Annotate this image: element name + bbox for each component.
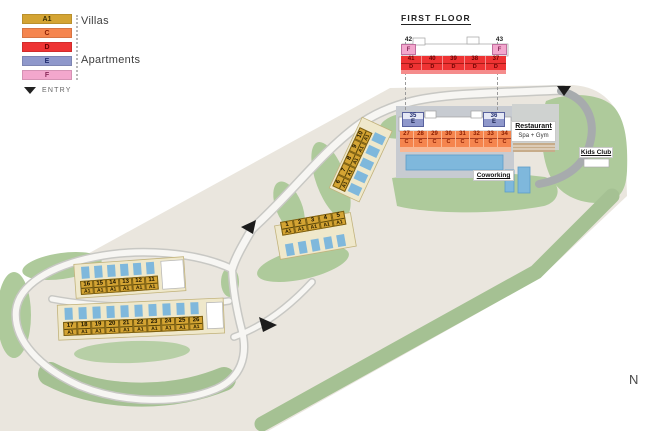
legend-swatch: D: [22, 42, 72, 52]
unit-type-badge: E: [484, 119, 504, 126]
unit-type: A1: [64, 329, 76, 336]
kids-club-label: Kids Club: [579, 147, 613, 158]
unit-number: 32: [470, 131, 483, 139]
legend-swatch: F: [22, 70, 72, 80]
unit-type-badge: F: [401, 44, 416, 55]
unit-type: A1: [78, 329, 90, 336]
unit-number: 34: [498, 131, 511, 139]
legend-swatch-column: A1 C D E F: [22, 14, 72, 80]
unit-43[interactable]: 43 F: [492, 36, 507, 55]
villa-unit[interactable]: 16 A1: [80, 280, 94, 295]
unit-number: 30: [442, 131, 455, 139]
unit-number: 28: [414, 131, 427, 139]
unit-type: A1: [162, 325, 174, 332]
villa-unit[interactable]: 23 A1: [147, 318, 162, 333]
apartment-unit[interactable]: 32 C: [470, 131, 483, 147]
unit-type: D: [465, 64, 485, 71]
unit-type: C: [414, 139, 427, 146]
unit-type: A1: [133, 285, 144, 292]
villa-unit[interactable]: 17 A1: [63, 321, 78, 336]
legend-item: C: [22, 28, 72, 38]
unit-number: 33: [484, 131, 497, 139]
unit-number: 42: [401, 36, 416, 44]
first-floor-title: FIRST FLOOR: [401, 13, 471, 25]
unit-type: A1: [95, 287, 106, 294]
legend-item: F: [22, 70, 72, 80]
unit-number: 39: [443, 56, 463, 64]
unit-type: A1: [176, 325, 188, 332]
unit-type: A1: [134, 326, 146, 333]
unit-type-badge: F: [492, 44, 507, 55]
entry-label: ENTRY: [42, 87, 72, 94]
unit-type: D: [486, 64, 506, 71]
villa-unit[interactable]: 12 A1: [132, 276, 146, 291]
villa-unit[interactable]: 19 A1: [91, 320, 106, 335]
villa-unit[interactable]: 24 A1: [161, 317, 176, 332]
legend-item: D: [22, 42, 72, 52]
unit-type: C: [456, 139, 469, 146]
unit-42[interactable]: 42 F: [401, 36, 416, 55]
apartment-unit[interactable]: 39 D: [443, 56, 463, 70]
unit-number: 40: [422, 56, 442, 64]
entry-arrow-icon: [24, 87, 36, 94]
restaurant-terrace: [513, 143, 555, 152]
legend-bracket-line: [76, 15, 78, 80]
apartment-unit[interactable]: 33 C: [484, 131, 497, 147]
apartment-unit[interactable]: 41 D: [401, 56, 421, 70]
unit-type: D: [443, 64, 463, 71]
unit-number: 41: [401, 56, 421, 64]
unit-number: 38: [465, 56, 485, 64]
villa-unit[interactable]: 25 A1: [175, 317, 190, 332]
unit-number: 31: [456, 131, 469, 139]
unit-number: 27: [400, 131, 413, 139]
apartment-unit[interactable]: 40 D: [422, 56, 442, 70]
masterplan-canvas: A1 C D E F Villas Apartments ENTRY FIRST…: [0, 0, 647, 431]
north-indicator: N: [629, 372, 638, 387]
villa-unit[interactable]: 18 A1: [77, 321, 92, 336]
unit-type: A1: [146, 284, 157, 291]
unit-type: C: [442, 139, 455, 146]
villa-unit[interactable]: 21 A1: [119, 319, 134, 334]
villa-unit[interactable]: 22 A1: [133, 318, 148, 333]
apartment-unit[interactable]: 29 C: [428, 131, 441, 147]
legend-swatch: E: [22, 56, 72, 66]
apartment-unit[interactable]: 27 C: [400, 131, 413, 147]
coworking-label: Coworking: [473, 170, 514, 181]
ground-floor-c-row: 27 C 28 C 29 C 30 C 31 C 32 C 33 C 34 C: [400, 131, 511, 152]
apartment-unit[interactable]: 31 C: [456, 131, 469, 147]
villa-unit[interactable]: 11 A1: [145, 276, 159, 291]
apartment-unit[interactable]: 34 C: [498, 131, 511, 147]
unit-type: C: [428, 139, 441, 146]
unit-type: A1: [82, 288, 93, 295]
villa-unit[interactable]: 15 A1: [93, 279, 107, 294]
villa-unit[interactable]: 14 A1: [106, 278, 120, 293]
legend-item: A1: [22, 14, 72, 24]
villa-unit[interactable]: 13 A1: [119, 277, 133, 292]
unit-number: 37: [486, 56, 506, 64]
villa-unit[interactable]: 26 A1: [189, 316, 204, 331]
spa-gym-subtitle: Spa + Gym: [512, 132, 555, 140]
unit-type: D: [422, 64, 442, 71]
legend-apartments-label: Apartments: [81, 54, 140, 66]
unit-type-badge: E: [403, 119, 423, 126]
unit-type: A1: [107, 286, 118, 293]
main-pool: [406, 155, 503, 170]
unit-number: 29: [428, 131, 441, 139]
unit-type: C: [484, 139, 497, 146]
unit-number: 43: [492, 36, 507, 44]
apartment-unit[interactable]: 28 C: [414, 131, 427, 147]
legend-item: E: [22, 56, 72, 66]
restaurant-title: Restaurant: [512, 122, 555, 132]
unit-36[interactable]: 36 E: [483, 112, 505, 127]
apartment-unit[interactable]: 37 D: [486, 56, 506, 70]
apartment-unit[interactable]: 30 C: [442, 131, 455, 147]
unit-type: A1: [190, 324, 202, 331]
unit-type: A1: [106, 328, 118, 335]
legend-entry: ENTRY: [24, 87, 72, 94]
unit-type: C: [470, 139, 483, 146]
villa-unit[interactable]: 5 A1: [331, 211, 346, 227]
unit-type: C: [400, 139, 413, 146]
first-floor-d-row: 41 D 40 D 39 D 38 D 37 D: [401, 56, 506, 74]
unit-35[interactable]: 35 E: [402, 112, 424, 127]
legend-swatch: A1: [22, 14, 72, 24]
unit-type: C: [498, 139, 511, 146]
kids-club-building: [584, 159, 609, 167]
apartment-unit[interactable]: 38 D: [465, 56, 485, 70]
restaurant-spa-gym-label: Restaurant Spa + Gym: [511, 121, 556, 142]
unit-type: D: [401, 64, 421, 71]
legend-swatch: C: [22, 28, 72, 38]
legend-villas-label: Villas: [81, 15, 109, 27]
unit-type: A1: [120, 285, 131, 292]
unit-type: A1: [92, 328, 104, 335]
unit-type: A1: [148, 326, 160, 333]
villa-unit[interactable]: 20 A1: [105, 320, 120, 335]
unit-type: A1: [120, 327, 132, 334]
